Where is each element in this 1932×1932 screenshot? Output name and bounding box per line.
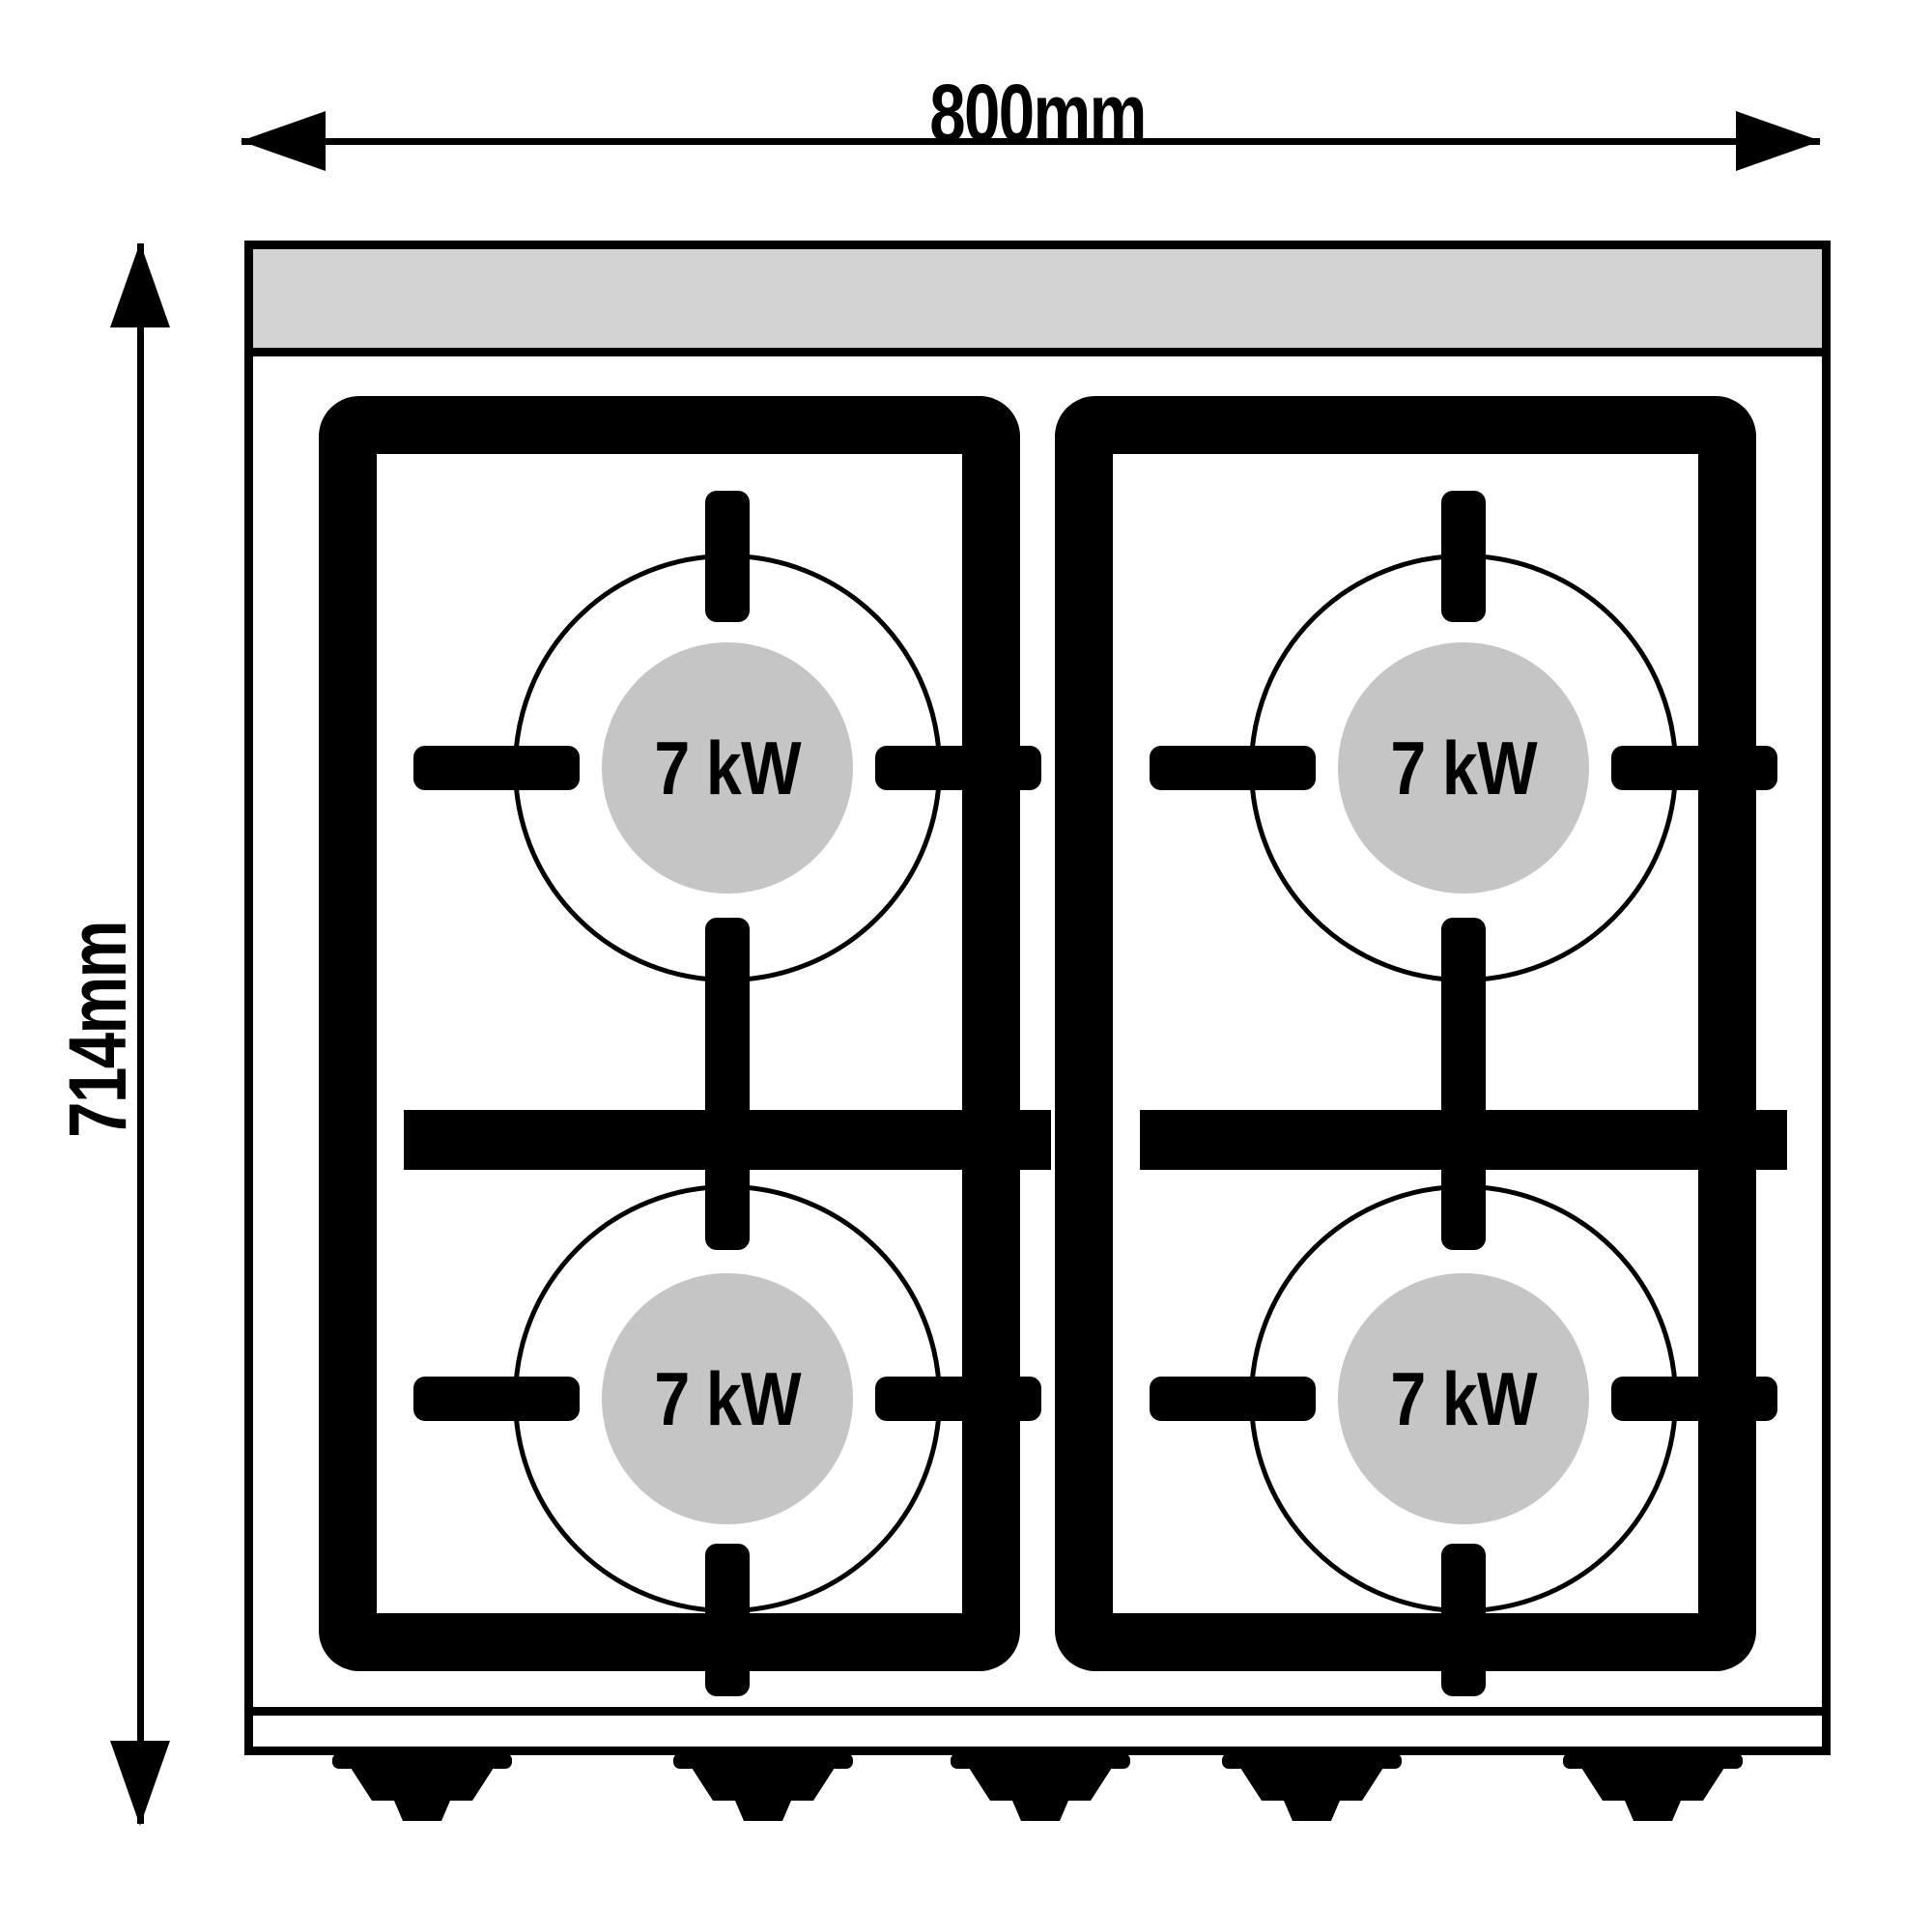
stove-foot — [1561, 1753, 1745, 1823]
arrow-up-icon — [110, 242, 170, 327]
stove-foot — [949, 1753, 1132, 1823]
burner-power-label: 7 kW — [528, 718, 925, 818]
grate-middle-rung — [404, 1110, 1051, 1170]
stove-foot — [671, 1753, 855, 1823]
back-panel — [253, 249, 1822, 356]
arrow-left-icon — [241, 111, 326, 171]
stove-foot — [330, 1753, 514, 1823]
grate-middle-rung — [1140, 1110, 1787, 1170]
arrow-right-icon — [1736, 111, 1821, 171]
grate-right: 7 kW 7 kW — [1055, 396, 1756, 1671]
stove-foot — [1220, 1753, 1404, 1823]
burner-power-label: 7 kW — [528, 1349, 925, 1449]
front-edge-line — [253, 1707, 1822, 1716]
burner-power-label: 7 kW — [1264, 1349, 1662, 1449]
width-dimension-label: 800mm — [806, 65, 1269, 161]
grate-left: 7 kW 7 kW — [319, 396, 1020, 1671]
height-dimension-line — [137, 243, 144, 1824]
burner-power-label: 7 kW — [1264, 718, 1662, 818]
stove-top-diagram: 800mm 714mm 7 kW 7 kW — [0, 0, 1932, 1932]
arrow-down-icon — [110, 1741, 170, 1826]
height-dimension-label: 714mm — [49, 798, 146, 1262]
width-dimension-line — [241, 138, 1820, 145]
